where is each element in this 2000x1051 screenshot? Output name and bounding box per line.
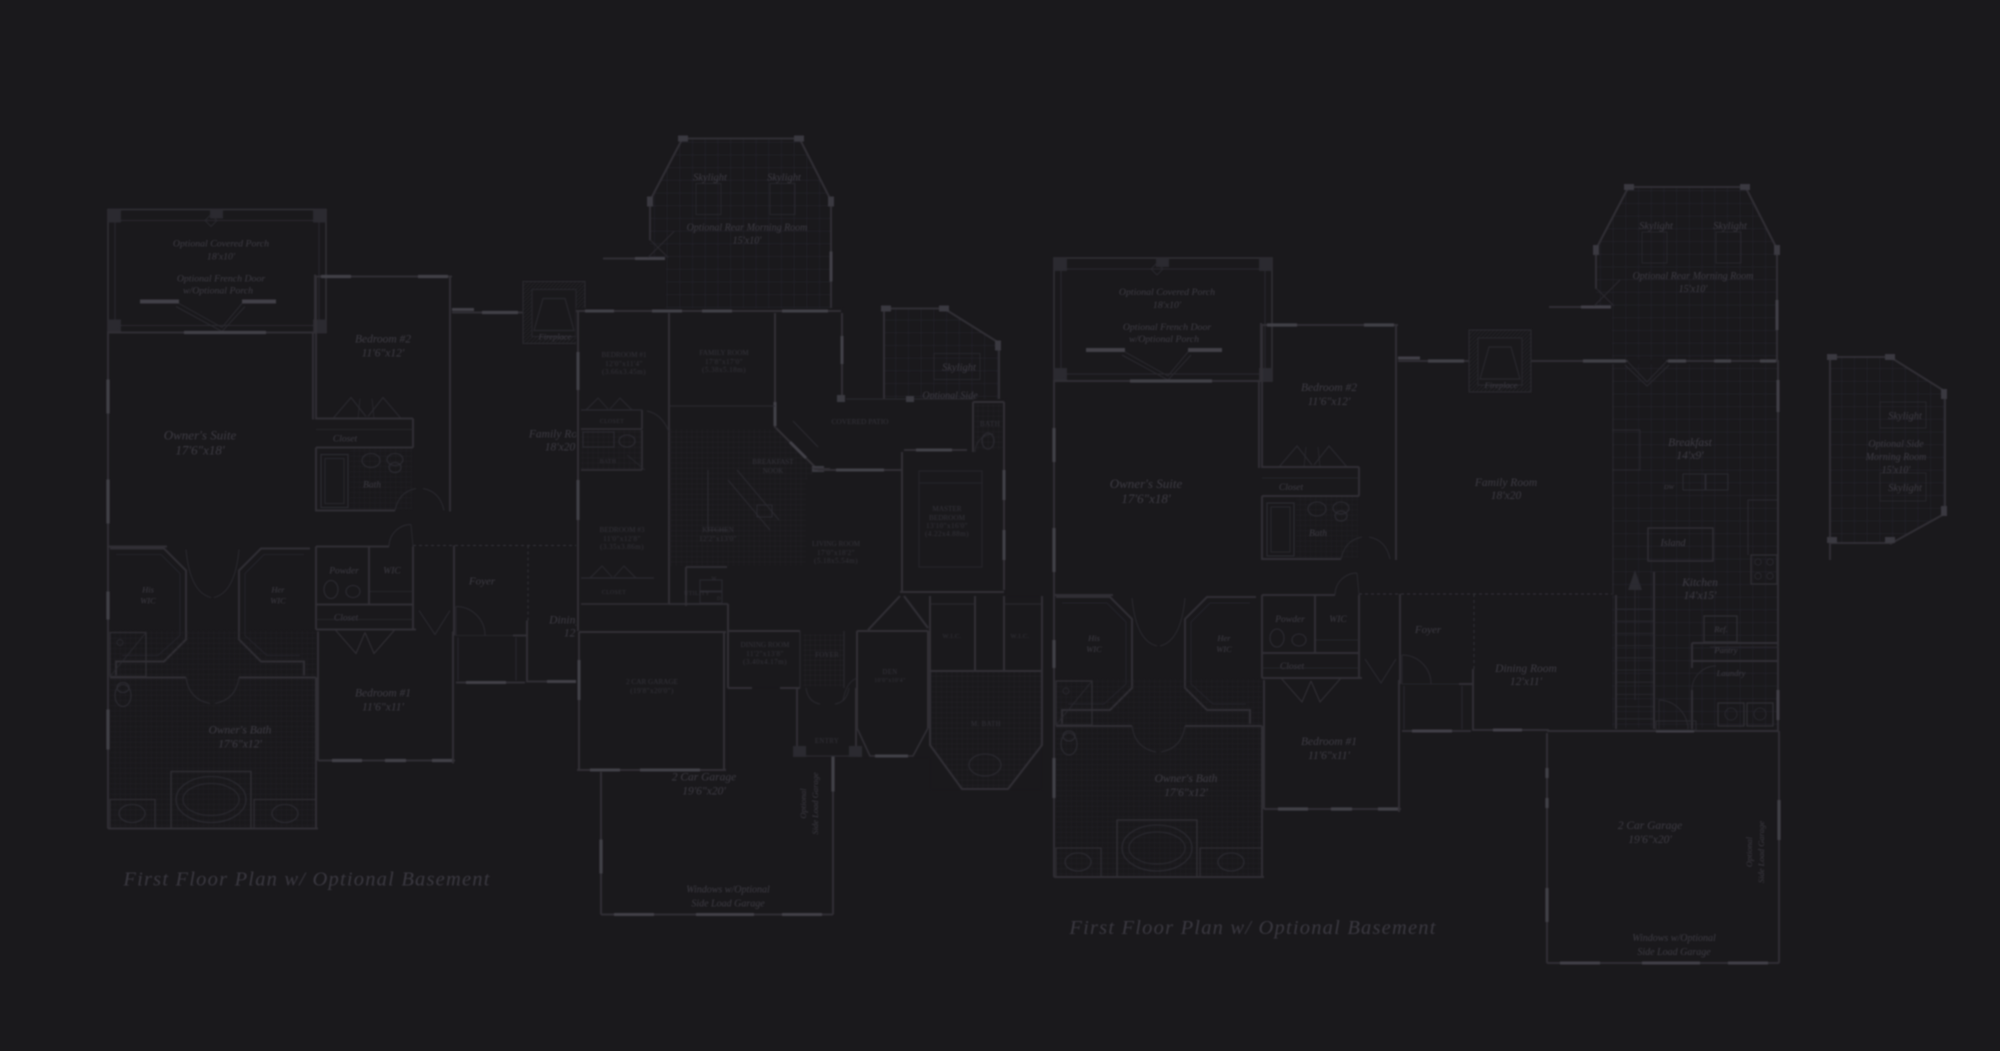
svg-text:(3.35x3.86m): (3.35x3.86m) (600, 543, 644, 551)
svg-text:2 CAR GARAGE: 2 CAR GARAGE (626, 678, 679, 686)
svg-text:13'10"x16'0": 13'10"x16'0" (926, 522, 968, 530)
svg-text:(5.38x5.18m): (5.38x5.18m) (702, 366, 746, 374)
svg-text:BATH: BATH (980, 420, 1000, 428)
svg-text:W.I.C.: W.I.C. (942, 633, 961, 640)
svg-text:FAMILY ROOM: FAMILY ROOM (699, 349, 749, 357)
svg-text:(3.66x3.45m): (3.66x3.45m) (602, 368, 646, 376)
svg-text:17'0"x18'2": 17'0"x18'2" (817, 549, 855, 557)
svg-text:(4.22x4.88m): (4.22x4.88m) (925, 530, 969, 538)
svg-text:W: W (711, 577, 716, 582)
svg-text:DINING ROOM: DINING ROOM (741, 641, 791, 649)
svg-text:12'0"x11'4": 12'0"x11'4" (605, 360, 643, 368)
svg-text:M. BATH: M. BATH (971, 721, 1001, 728)
svg-text:BEDROOM #1: BEDROOM #1 (602, 351, 647, 359)
svg-text:11'2"x13'8": 11'2"x13'8" (746, 650, 784, 658)
svg-text:(3.40x4.17m): (3.40x4.17m) (743, 658, 787, 666)
svg-text:(5.18x5.54m): (5.18x5.54m) (814, 557, 858, 565)
svg-text:11'0"x12'8": 11'0"x12'8" (603, 535, 641, 543)
svg-text:W.I.C.: W.I.C. (1010, 633, 1029, 640)
svg-text:BEDROOM #3: BEDROOM #3 (600, 526, 645, 534)
svg-text:CLOSET: CLOSET (602, 590, 626, 596)
svg-text:BEDROOM: BEDROOM (929, 514, 966, 522)
svg-text:KITCHEN: KITCHEN (702, 526, 734, 534)
svg-text:BREAKFAST: BREAKFAST (752, 458, 794, 466)
svg-text:12'2"x13'0": 12'2"x13'0" (699, 535, 737, 543)
svg-text:MASTER: MASTER (932, 505, 961, 513)
svg-text:LIVING ROOM: LIVING ROOM (812, 540, 861, 548)
svg-text:10'0"x10'4": 10'0"x10'4" (874, 678, 906, 684)
svg-text:COVERED PATIO: COVERED PATIO (831, 417, 889, 426)
svg-text:(19'8"x20'0"): (19'8"x20'0") (630, 687, 674, 695)
svg-text:FOYER: FOYER (815, 651, 839, 659)
svg-text:ENTRY: ENTRY (815, 738, 839, 745)
svg-text:NOOK: NOOK (763, 467, 785, 475)
svg-text:17'8"x17'0": 17'8"x17'0" (705, 358, 743, 366)
svg-text:CLOSET: CLOSET (600, 419, 624, 425)
svg-text:DEN: DEN (882, 669, 897, 676)
svg-text:BATH: BATH (600, 459, 617, 465)
svg-text:UTILITY: UTILITY (684, 591, 710, 597)
svg-text:D: D (717, 597, 721, 602)
